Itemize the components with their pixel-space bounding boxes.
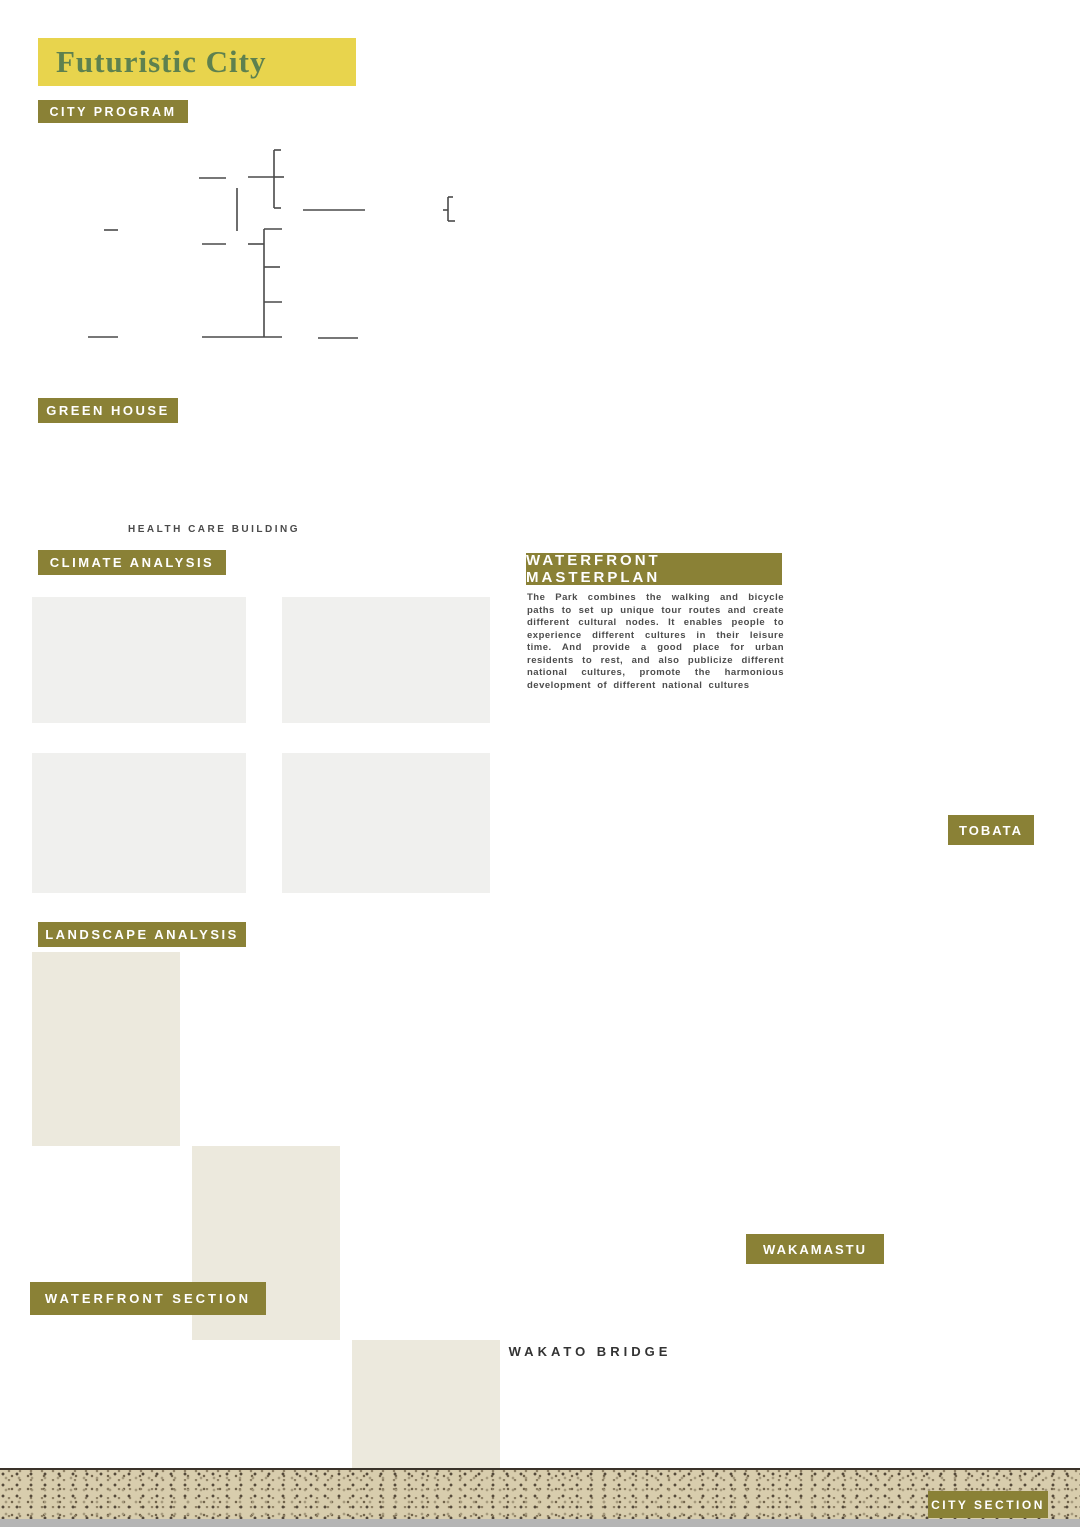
wind-velocity-chart [282,597,490,723]
label-tobata: TOBATA [948,815,1034,845]
render-photo-under-bridge-wheelchair [516,310,776,532]
poster-title-banner: Futuristic City [38,38,356,86]
city-program-diagram [30,128,500,386]
temperature-chart [32,753,246,893]
water-basin [438,1452,710,1514]
landscape-analysis-header: LANDSCAPE ANALYSIS [38,922,246,947]
landscape-map-function [32,952,180,1146]
bottom-gray-bar [0,1519,1080,1527]
city-program-lines [30,128,500,386]
wind-wheel-chart [282,753,490,893]
render-photo-under-bridge-girl [806,310,1056,532]
city-section-header: CITY SECTION [928,1491,1048,1518]
wakato-bridge-photo [452,1386,698,1458]
health-care-building-caption: HEALTH CARE BUILDING [128,524,300,535]
waterfront-section-header: WATERFRONT SECTION [30,1282,266,1315]
waterfront-masterplan-header: WATERFRONT MASTERPLAN [526,553,782,585]
poster-title: Futuristic City [38,44,266,80]
label-wakamastu: WAKAMASTU [746,1234,884,1264]
masterplan-paragraph: The Park combines the walking and bicycl… [527,592,784,692]
city-program-header: CITY PROGRAM [38,100,188,123]
poster: Futuristic City CITY PROGRAM GREEN HOUSE… [0,0,1080,1527]
wakato-bridge-label: WAKATO BRIDGE [478,1344,702,1359]
render-photo-waterfront-park [516,64,1056,290]
green-house-header: GREEN HOUSE [38,398,178,423]
climate-analysis-header: CLIMATE ANALYSIS [38,550,226,575]
sky-cover-chart [32,597,246,723]
